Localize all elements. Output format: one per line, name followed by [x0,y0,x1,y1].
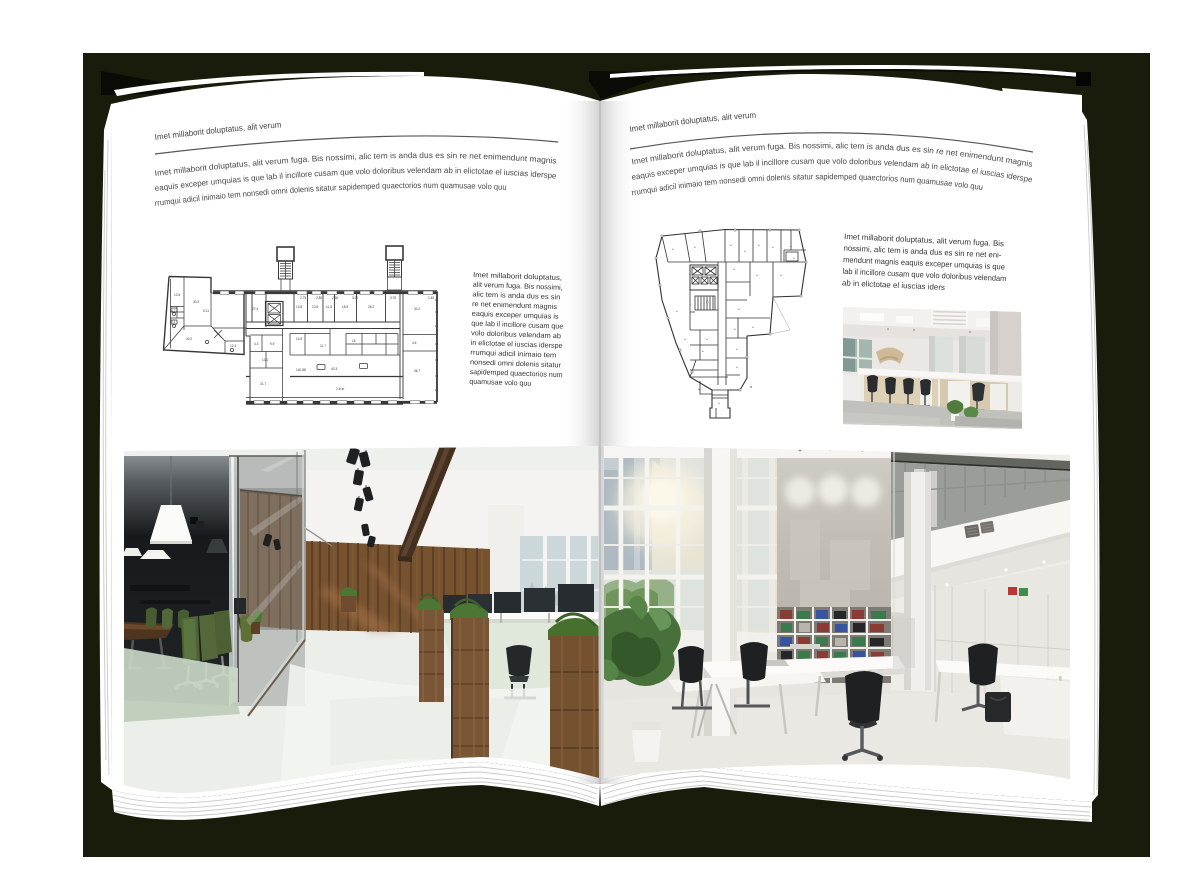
svg-text:2.30: 2.30 [332,296,338,300]
svg-text:12.6: 12.6 [174,293,180,297]
svg-text:2-й эт: 2-й эт [336,387,345,391]
svg-text:30.2: 30.2 [193,300,199,304]
svg-text:18.5: 18.5 [342,305,348,309]
svg-text:40.2: 40.2 [186,337,192,341]
svg-text:5.11: 5.11 [203,309,209,313]
svg-text:▵: ▵ [758,243,760,247]
svg-text:14.5: 14.5 [296,337,302,341]
svg-text:13.1: 13.1 [262,358,268,362]
svg-text:11.8: 11.8 [326,305,332,309]
svg-text:▵: ▵ [793,256,795,260]
svg-text:2.80: 2.80 [316,296,322,300]
svg-text:26.2: 26.2 [368,305,374,309]
svg-text:▵: ▵ [733,267,735,271]
svg-text:▵: ▵ [780,273,782,277]
svg-text:5.1: 5.1 [171,320,176,324]
svg-text:▵: ▵ [736,347,738,351]
svg-text:30.2: 30.2 [414,307,420,311]
svg-text:▵: ▵ [706,337,708,341]
svg-text:▵: ▵ [684,337,686,341]
svg-text:36.7: 36.7 [414,369,420,373]
svg-text:4.3: 4.3 [254,342,259,346]
svg-text:11.7: 11.7 [320,344,326,348]
svg-text:▵: ▵ [718,401,720,405]
svg-text:1.45: 1.45 [428,296,434,300]
svg-text:▵: ▵ [730,243,732,247]
svg-text:▵: ▵ [752,325,754,329]
svg-text:▵: ▵ [756,273,758,277]
svg-text:4.6: 4.6 [412,341,417,345]
svg-text:3.00: 3.00 [352,296,358,300]
svg-text:140.88: 140.88 [296,368,306,372]
svg-text:40.3: 40.3 [331,367,337,371]
svg-text:▵: ▵ [738,307,740,311]
svg-text:и: и [750,385,752,389]
svg-text:▵: ▵ [702,349,704,353]
svg-text:3.75: 3.75 [390,296,396,300]
svg-text:▵: ▵ [672,247,674,251]
svg-text:16: 16 [352,339,356,343]
svg-text:▵: ▵ [676,309,678,313]
svg-text:▵: ▵ [736,365,738,369]
svg-text:31.7: 31.7 [260,382,266,386]
svg-text:▵: ▵ [698,387,700,391]
svg-text:12.4: 12.4 [230,344,236,348]
svg-text:2.75: 2.75 [300,296,306,300]
svg-text:▵: ▵ [744,249,746,253]
svg-text:4.7: 4.7 [171,309,176,313]
svg-text:13.8: 13.8 [296,305,302,309]
svg-text:▵: ▵ [772,245,774,249]
svg-text:9.9: 9.9 [270,342,275,346]
svg-text:10.8: 10.8 [312,305,318,309]
svg-text:▵: ▵ [790,244,792,248]
svg-text:27.4: 27.4 [252,307,258,311]
svg-text:▵: ▵ [694,245,696,249]
svg-text:▵: ▵ [734,327,736,331]
